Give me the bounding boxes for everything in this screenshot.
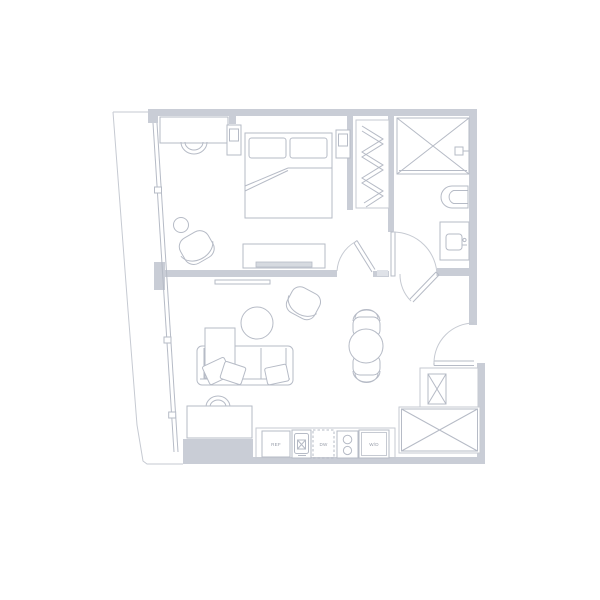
exterior-wall-top [148,109,477,116]
tv [256,262,312,267]
coffee-table [241,307,273,339]
door-swing-arc [337,242,355,271]
wall-cap-top-left [148,109,158,123]
shower-control [455,147,463,155]
console-shelf [215,280,270,284]
bedroom-right-wall [347,114,353,210]
vanity-sink [440,222,469,260]
closet [356,120,389,208]
toilet [441,186,468,208]
floor-plan: REF DW W/D [0,0,600,600]
accent-chair [282,283,324,323]
dishwasher: DW [313,430,334,458]
utility-closet-small [420,368,478,407]
ref-label: REF [271,442,281,447]
bedroom-desk [160,117,228,143]
wall-chunk-bottom-left [183,439,253,459]
nightstand-right [336,130,350,158]
window-mullion [155,187,162,193]
entry-jamb-cap [469,318,477,325]
utility-closet-large [399,407,480,453]
nightstand-left [227,125,241,155]
bedroom [160,117,350,269]
work-desk-chair [206,396,230,407]
side-table [174,218,189,233]
refrigerator: REF [262,431,290,457]
wall-stub-top [229,116,236,124]
door-leaf [410,272,439,302]
doorway-threshold [377,270,388,276]
window-mullion [164,337,171,343]
building-edge [113,112,183,464]
exterior-wall-right-upper [469,109,477,325]
utility-closets [399,368,480,453]
bathroom-bottom-wall [437,268,469,276]
shower-x-marker [397,118,469,174]
door-swing-arc [400,274,411,301]
bathroom-door [391,232,437,276]
door-swing-arc [434,323,474,363]
washer-dryer: W/D [359,430,389,458]
kitchen: REF DW W/D [256,428,395,458]
balcony-edge-slanted-line [113,112,183,464]
kitchen-sink [292,430,311,458]
bed [245,133,332,218]
wd-label: W/D [369,442,379,447]
cooktop [337,431,358,458]
shower [397,118,469,174]
door-leaf [434,361,474,366]
sofa [197,328,293,385]
bathroom [391,118,469,276]
tv-console [243,244,325,268]
entry-door [434,323,474,366]
door-leaf [354,241,375,273]
floor-plan-page: REF DW W/D [0,0,600,600]
work-desk [187,396,252,438]
dining-table [349,329,383,363]
bedroom-door [337,241,375,273]
door-swing-arc [393,232,437,276]
bedroom-living-divider-wall [161,270,337,277]
hallway-door [400,272,439,302]
bedroom-desk-chair [181,142,207,154]
window-mullion [169,412,176,418]
dining-set [349,310,383,383]
living-room [187,280,383,438]
dw-label: DW [319,442,328,447]
door-leaf [391,232,395,276]
